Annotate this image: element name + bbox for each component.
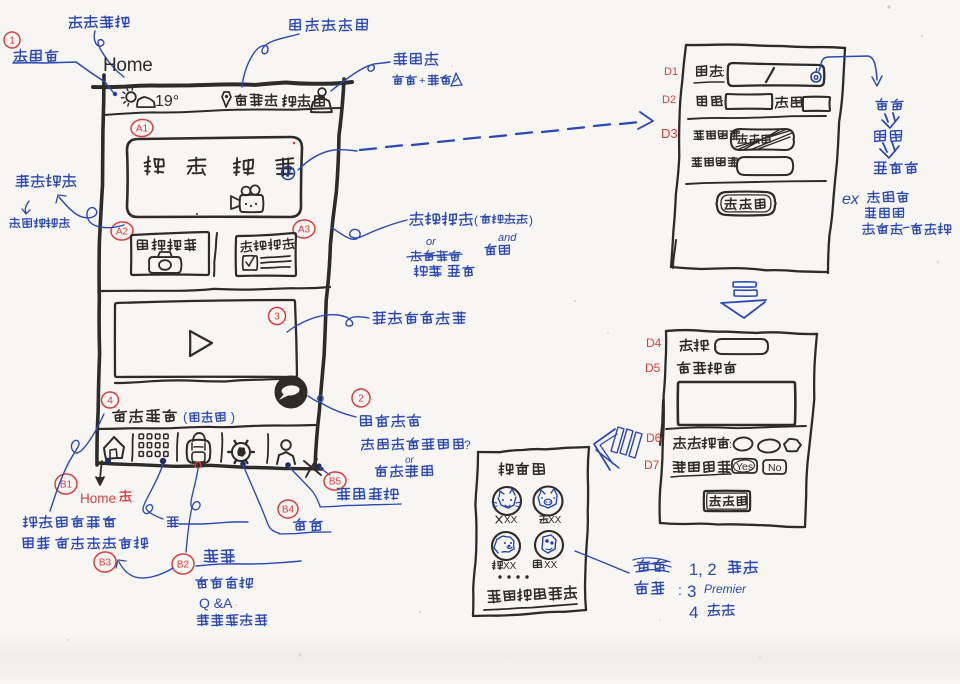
svg-text:No: No — [768, 462, 782, 474]
svg-text:Q &A: Q &A — [199, 595, 233, 611]
svg-text:+: + — [419, 75, 425, 87]
svg-text:A3: A3 — [298, 225, 311, 236]
svg-text:D2: D2 — [662, 94, 676, 106]
svg-text::: : — [678, 582, 682, 598]
svg-text:D4: D4 — [646, 336, 662, 350]
svg-text:XX: XX — [548, 515, 562, 526]
svg-text:D7: D7 — [644, 458, 660, 472]
svg-text:XX: XX — [504, 515, 518, 526]
svg-text:(: ( — [474, 213, 478, 227]
svg-text:XX: XX — [503, 561, 517, 572]
svg-text::: : — [721, 97, 724, 109]
svg-text:4: 4 — [107, 396, 113, 407]
svg-text:D1: D1 — [664, 66, 678, 78]
svg-text::: : — [729, 439, 732, 451]
svg-text:A1: A1 — [136, 124, 149, 135]
svg-text:1: 1 — [9, 36, 15, 47]
svg-text::: : — [722, 67, 725, 79]
svg-text:(: ( — [183, 410, 188, 425]
svg-text:3: 3 — [687, 582, 696, 601]
svg-text:B1: B1 — [60, 480, 73, 491]
svg-text:D3: D3 — [661, 126, 678, 141]
svg-text:?: ? — [464, 438, 471, 452]
svg-text:3: 3 — [274, 312, 280, 323]
svg-text:B2: B2 — [177, 560, 190, 571]
svg-text:Premier: Premier — [704, 582, 747, 596]
svg-text:Home: Home — [103, 55, 152, 76]
svg-text:D6: D6 — [646, 431, 662, 445]
svg-text:): ) — [529, 213, 533, 227]
svg-text:D5: D5 — [645, 361, 661, 375]
svg-text:B4: B4 — [282, 505, 295, 516]
svg-text:4: 4 — [689, 603, 698, 622]
svg-text:XX: XX — [544, 560, 558, 571]
svg-text:19°: 19° — [155, 93, 179, 110]
svg-text:2: 2 — [358, 394, 364, 405]
svg-text:and: and — [498, 232, 517, 244]
svg-text:B5: B5 — [329, 477, 342, 488]
svg-text:or: or — [405, 455, 415, 466]
svg-text:B3: B3 — [99, 558, 112, 569]
svg-text:or: or — [426, 236, 437, 248]
svg-text:Home: Home — [80, 491, 116, 506]
svg-text:A2: A2 — [116, 227, 129, 238]
svg-text:1, 2: 1, 2 — [689, 561, 717, 579]
svg-text::: : — [707, 339, 710, 353]
svg-text:ex: ex — [842, 191, 860, 208]
svg-text:): ) — [231, 410, 235, 425]
